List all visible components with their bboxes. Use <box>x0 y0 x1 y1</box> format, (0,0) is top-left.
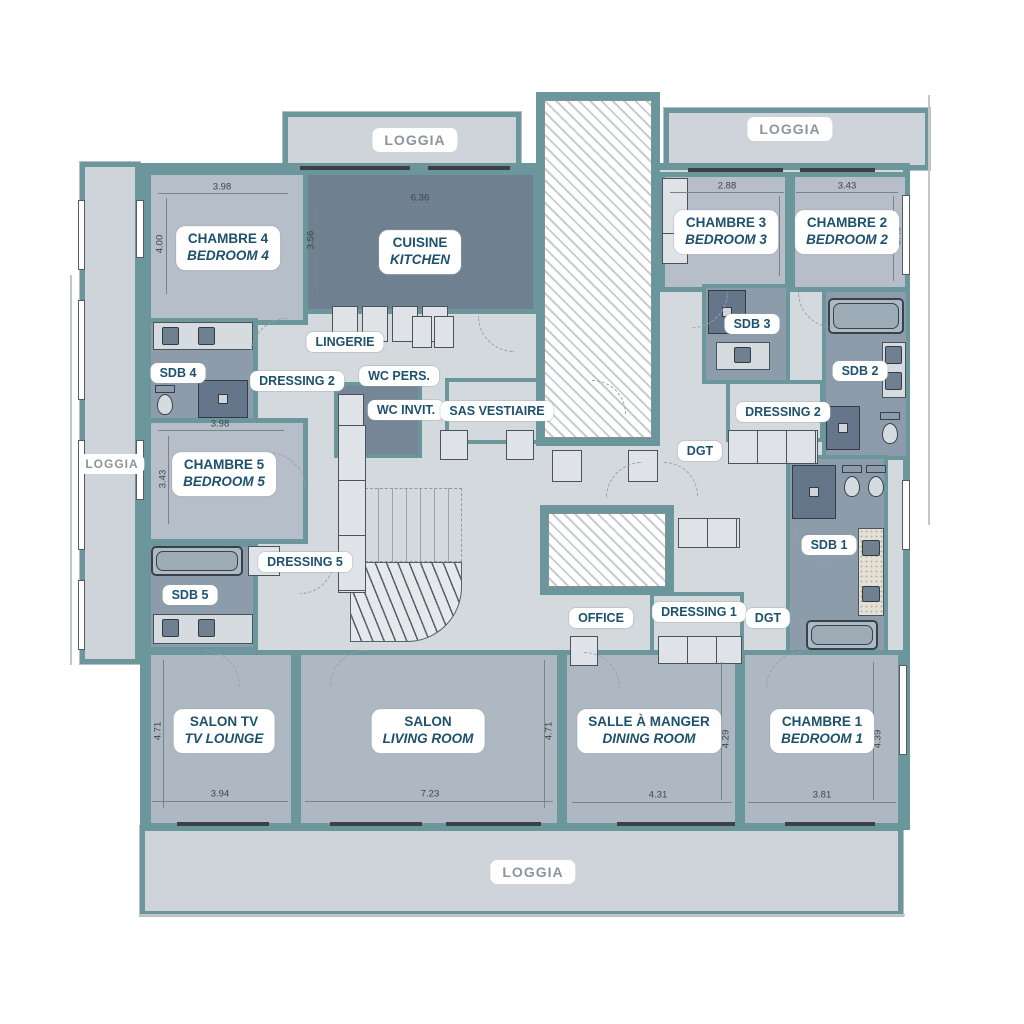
terrace-edge-right <box>928 95 930 525</box>
label-dressing-1: DRESSING 1 <box>652 602 746 622</box>
sink-icon <box>862 586 880 602</box>
label-wc-invit: WC INVIT. <box>368 400 444 420</box>
label-sas-vestiaire: SAS VESTIAIRE <box>440 401 553 421</box>
toilet-icon <box>155 385 175 415</box>
label-chambre-3: CHAMBRE 3BEDROOM 3 <box>674 210 778 254</box>
window-icon <box>78 200 85 270</box>
loggia-left <box>80 162 140 664</box>
shower-icon <box>826 406 860 450</box>
dim-salon-height: 4.71 <box>544 722 555 741</box>
label-salon: SALONLIVING ROOM <box>372 709 485 753</box>
wardrobe-icon <box>678 518 740 548</box>
elevator-landing-icon <box>552 450 582 482</box>
dimension-line <box>670 192 784 193</box>
label-wc-pers: WC PERS. <box>359 366 439 386</box>
dim-salle-a-manger-width: 4.31 <box>649 790 668 801</box>
dim-salle-a-manger-height: 4.29 <box>721 730 732 749</box>
bathtub-icon <box>151 546 243 576</box>
loggia-label: LOGGIA <box>79 454 144 474</box>
dim-salon-tv-width: 3.94 <box>211 789 230 800</box>
bathtub-icon <box>828 298 904 334</box>
dimension-line <box>166 198 167 294</box>
window-icon <box>617 822 735 826</box>
dim-chambre-1-height: 4.39 <box>873 730 884 749</box>
terrace-edge-left <box>70 275 72 665</box>
window-icon <box>300 166 410 170</box>
dimension-line <box>572 802 732 803</box>
dim-chambre-3-width: 2.88 <box>718 181 737 192</box>
dim-cuisine-width: 6.36 <box>411 193 430 204</box>
label-sdb-2: SDB 2 <box>833 361 888 381</box>
window-icon <box>800 168 875 172</box>
cabinet-icon <box>506 430 534 460</box>
cabinet-icon <box>440 430 468 460</box>
toilet-icon <box>842 465 862 497</box>
dim-chambre-5-width: 3.98 <box>211 419 230 430</box>
window-icon <box>446 822 541 826</box>
dimension-line <box>158 430 284 431</box>
sink-icon <box>885 372 902 390</box>
window-icon <box>136 200 144 258</box>
window-icon <box>902 480 910 550</box>
label-dressing-2-left: DRESSING 2 <box>250 371 344 391</box>
dimension-line <box>779 196 780 276</box>
sink-icon <box>862 540 880 556</box>
dimension-line <box>796 192 898 193</box>
window-icon <box>688 168 783 172</box>
dim-chambre-5-height: 3.43 <box>158 470 169 489</box>
dimension-line <box>305 801 553 802</box>
window-icon <box>78 580 85 650</box>
label-dgt-upper: DGT <box>678 441 722 461</box>
bathtub-icon <box>806 620 878 650</box>
cabinet-icon <box>412 316 432 348</box>
label-lingerie: LINGERIE <box>306 332 383 352</box>
loggia-label: LOGGIA <box>747 117 832 141</box>
wardrobe-icon <box>728 430 818 464</box>
label-sdb-1: SDB 1 <box>802 535 857 555</box>
label-salle-a-manger: SALLE À MANGERDINING ROOM <box>577 709 721 753</box>
window-icon <box>330 822 422 826</box>
toilet-icon <box>866 465 886 497</box>
dim-salon-tv-height: 4.71 <box>153 722 164 741</box>
window-icon <box>785 822 875 826</box>
loggia-label: LOGGIA <box>490 860 575 884</box>
window-icon <box>428 166 510 170</box>
terrace-edge-bottom <box>140 914 905 916</box>
dimension-line <box>158 193 288 194</box>
label-sdb-4: SDB 4 <box>151 363 206 383</box>
sink-icon <box>162 327 179 345</box>
window-icon <box>899 665 907 755</box>
dim-chambre-4-height: 4.00 <box>155 235 166 254</box>
sink-icon <box>198 619 215 637</box>
toilet-icon <box>880 412 900 444</box>
label-cuisine: CUISINEKITCHEN <box>379 230 461 274</box>
sink-icon <box>162 619 179 637</box>
label-chambre-4: CHAMBRE 4BEDROOM 4 <box>176 226 280 270</box>
floor-plan: LOGGIA LOGGIA LOGGIA LOGGIA CHAMBRE 4BED… <box>0 0 1024 1024</box>
label-chambre-1: CHAMBRE 1BEDROOM 1 <box>770 709 874 753</box>
label-sdb-5: SDB 5 <box>163 585 218 605</box>
dimension-line <box>748 802 896 803</box>
dim-salon-width: 7.23 <box>421 789 440 800</box>
dim-chambre-2-width: 3.43 <box>838 181 857 192</box>
dimension-line <box>318 204 526 205</box>
dimension-line <box>152 801 288 802</box>
cabinet-icon <box>434 316 454 348</box>
label-sdb-3: SDB 3 <box>725 314 780 334</box>
duct-shaft-icon <box>540 505 674 595</box>
loggia-label: LOGGIA <box>372 128 457 152</box>
wardrobe-icon <box>658 636 742 664</box>
label-salon-tv: SALON TVTV LOUNGE <box>174 709 275 753</box>
window-icon <box>78 300 85 400</box>
sink-icon <box>885 346 902 364</box>
shower-icon <box>792 465 836 519</box>
label-dressing-5: DRESSING 5 <box>258 552 352 572</box>
label-chambre-5: CHAMBRE 5BEDROOM 5 <box>172 452 276 496</box>
sink-icon <box>734 347 751 363</box>
dimension-line <box>317 205 318 293</box>
dim-chambre-4-width: 3.98 <box>213 182 232 193</box>
dim-cuisine-height: 3.56 <box>306 231 317 250</box>
sink-icon <box>198 327 215 345</box>
dim-chambre-1-width: 3.81 <box>813 790 832 801</box>
window-icon <box>177 822 269 826</box>
staircase-upper-flight-icon <box>350 488 462 562</box>
label-dressing-2-right: DRESSING 2 <box>736 402 830 422</box>
label-office: OFFICE <box>569 608 633 628</box>
shower-icon <box>198 380 248 418</box>
label-chambre-2: CHAMBRE 2BEDROOM 2 <box>795 210 899 254</box>
label-dgt-lower: DGT <box>746 608 790 628</box>
